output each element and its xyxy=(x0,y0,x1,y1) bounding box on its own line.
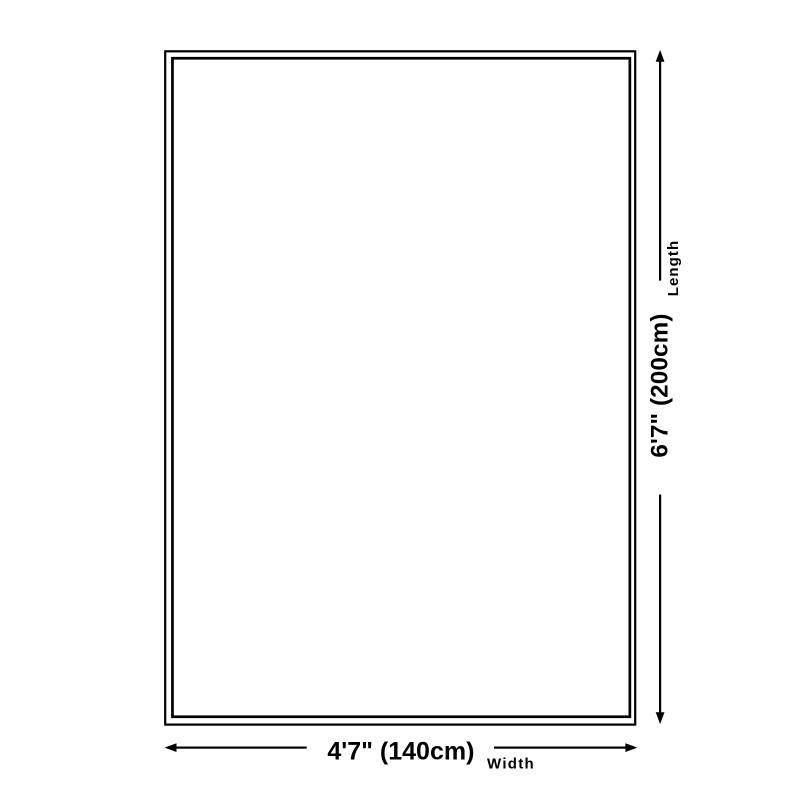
svg-text:Width: Width xyxy=(487,756,535,773)
svg-text:4'7" (140cm): 4'7" (140cm) xyxy=(327,737,474,765)
svg-text:6'7" (200cm): 6'7" (200cm) xyxy=(647,313,674,457)
svg-text:Length: Length xyxy=(665,240,682,297)
